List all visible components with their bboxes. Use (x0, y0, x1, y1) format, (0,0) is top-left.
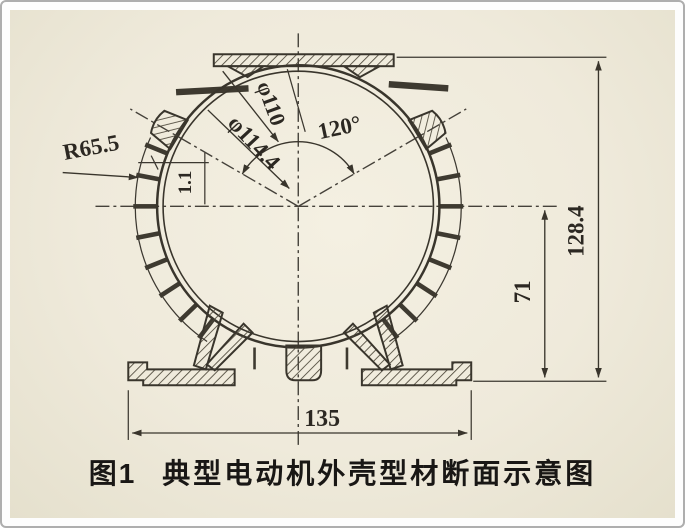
leader-fin-radius (63, 173, 139, 178)
fin (428, 257, 452, 270)
fin (398, 303, 418, 323)
fin-tip-rail-left (135, 137, 207, 341)
bottom-key-tab (286, 346, 321, 381)
engineering-drawing: R65.5 φ114.4 φ110 120° 1.1 128.4 71 135 (10, 10, 675, 518)
dim-label-overall-height: 128.4 (564, 205, 589, 256)
fin-tip-rail-right (389, 137, 461, 341)
dim-label-wall-thickness: 1.1 (175, 171, 196, 195)
fin (136, 231, 160, 240)
mounting-lug-left (147, 106, 188, 149)
top-plate-bar (214, 54, 394, 66)
fin (159, 281, 181, 298)
dim-label-base-width: 135 (304, 406, 340, 432)
mounting-lug-right (409, 106, 450, 149)
fin (133, 204, 157, 209)
dim-label-fin-radius: R65.5 (61, 130, 121, 165)
figure-title: 典型电动机外壳型材断面示意图 (162, 458, 596, 489)
scanned-figure-frame: R65.5 φ114.4 φ110 120° 1.1 128.4 71 135 … (0, 0, 685, 528)
fin (136, 173, 160, 182)
fin (144, 257, 168, 270)
mounting-foot-left (128, 306, 252, 386)
figure-number: 图1 (89, 458, 137, 489)
fin (415, 281, 437, 298)
top-mounting-plate (214, 54, 394, 77)
dim-line-inner-diameter-b (287, 69, 305, 132)
fin (439, 204, 463, 209)
dim-label-center-height: 71 (510, 280, 535, 303)
dim-label-inner-diameter: φ110 (252, 78, 290, 129)
figure-caption: 图1典型电动机外壳型材断面示意图 (10, 452, 675, 492)
fin (436, 173, 460, 182)
lug-shape (147, 106, 188, 149)
dim-label-lug-angle: 120° (316, 111, 364, 144)
paper-background: R65.5 φ114.4 φ110 120° 1.1 128.4 71 135 … (10, 10, 675, 518)
top-fin-bar-right (389, 81, 449, 92)
lug-shape (409, 106, 450, 149)
fin (436, 231, 460, 240)
fin (178, 303, 198, 323)
mounting-foot-right (344, 306, 471, 386)
